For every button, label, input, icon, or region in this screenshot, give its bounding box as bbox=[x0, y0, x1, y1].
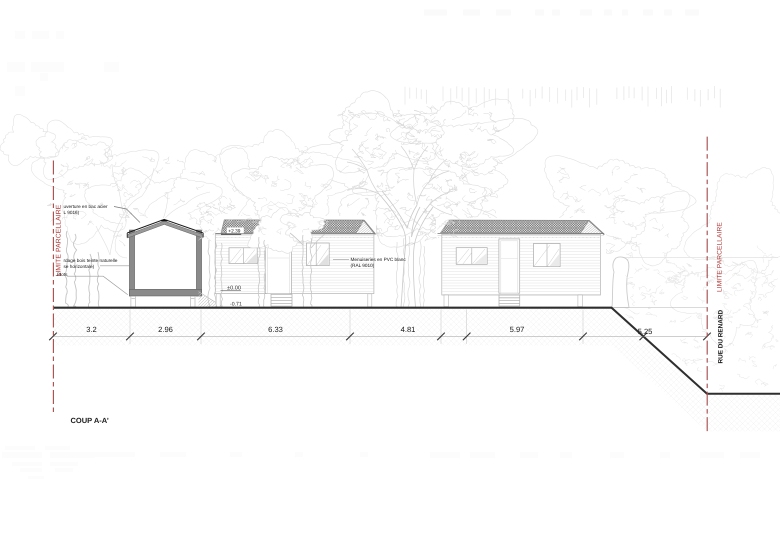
svg-text:rdage bois teinte naturelle: rdage bois teinte naturelle bbox=[64, 258, 118, 263]
svg-text:se horizontale): se horizontale) bbox=[64, 264, 95, 269]
svg-text:-0.71: -0.71 bbox=[230, 302, 242, 308]
svg-text:LIMITE PARCELLAIRE: LIMITE PARCELLAIRE bbox=[716, 222, 723, 292]
svg-text:3.2: 3.2 bbox=[86, 325, 97, 334]
svg-text:uverture en bac acier: uverture en bac acier bbox=[64, 204, 108, 209]
svg-text:RUE DU RENARD: RUE DU RENARD bbox=[718, 310, 725, 364]
svg-text:Plots: Plots bbox=[57, 272, 68, 277]
svg-text:L 9016): L 9016) bbox=[64, 210, 80, 215]
svg-text:LIMITE PARCELLAIRE: LIMITE PARCELLAIRE bbox=[56, 204, 63, 276]
svg-text:6.33: 6.33 bbox=[268, 325, 283, 334]
svg-text:+2.39: +2.39 bbox=[228, 229, 240, 235]
svg-text:COUP A-A’: COUP A-A’ bbox=[71, 416, 109, 425]
svg-text:4.81: 4.81 bbox=[401, 325, 416, 334]
svg-text:±0.00: ±0.00 bbox=[227, 285, 241, 291]
svg-text:2.96: 2.96 bbox=[158, 325, 173, 334]
svg-text:(RAL 9010): (RAL 9010) bbox=[351, 263, 375, 268]
svg-text:Menuiseries en PVC blanc: Menuiseries en PVC blanc bbox=[351, 257, 407, 262]
svg-text:5.97: 5.97 bbox=[510, 325, 525, 334]
svg-text:5.25: 5.25 bbox=[638, 327, 653, 336]
